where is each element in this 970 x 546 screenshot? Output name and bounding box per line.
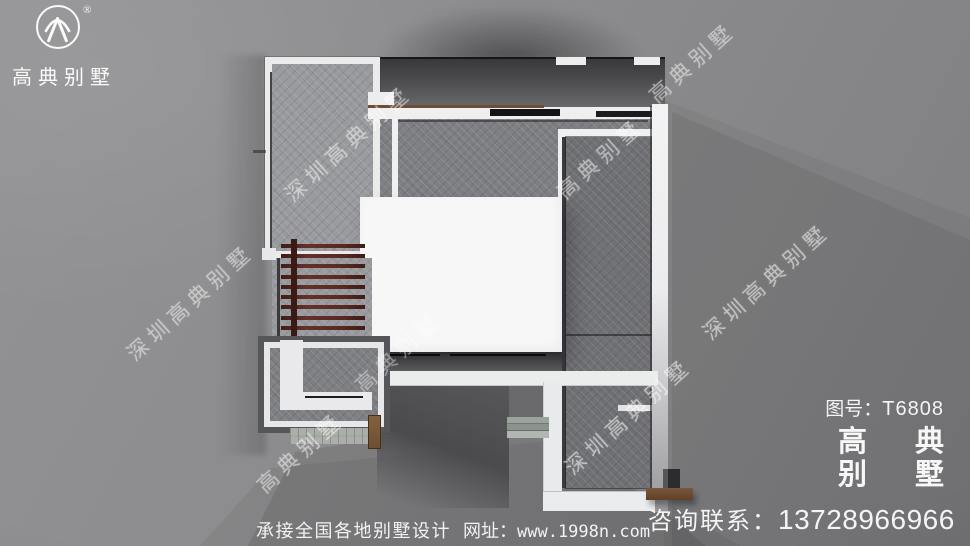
drawing-number-value: T6808 (882, 398, 944, 421)
logo-ring-icon (36, 5, 80, 49)
registered-mark: ® (83, 4, 91, 16)
brand-char: 墅 (915, 459, 944, 492)
logo-brand-text: 高典别墅 (12, 61, 132, 90)
brand-char: 高 (838, 426, 867, 459)
render-canvas: 深圳高典别墅深圳高典别墅高典别墅高典别墅高典别墅深圳高典别墅深圳高典别墅高典别墅… (0, 0, 970, 546)
brand-char: 别 (838, 459, 867, 492)
footer-line: 承接全国各地别墅设计 网址： www.1998n.com (256, 517, 650, 543)
drawing-number: 图号： T6808 (825, 394, 944, 421)
contact-label: 咨询联系： (648, 501, 778, 536)
brand-wordmark-line1: 高 典 (838, 426, 944, 459)
footer-site-url: www.1998n.com (517, 522, 650, 542)
contact-phone: 13728966966 (778, 504, 955, 536)
contact-line: 咨询联系： 13728966966 (648, 501, 955, 536)
drawing-number-label: 图号： (825, 394, 882, 421)
vignette (0, 0, 970, 546)
footer-site-label: 网址： (463, 517, 517, 543)
footer-service-text: 承接全国各地别墅设计 (256, 517, 451, 543)
logo-glyph-icon (38, 7, 77, 46)
brand-wordmark: 高 典 别 墅 (838, 426, 944, 492)
brand-wordmark-line2: 别 墅 (838, 459, 944, 492)
brand-char: 典 (915, 426, 944, 459)
